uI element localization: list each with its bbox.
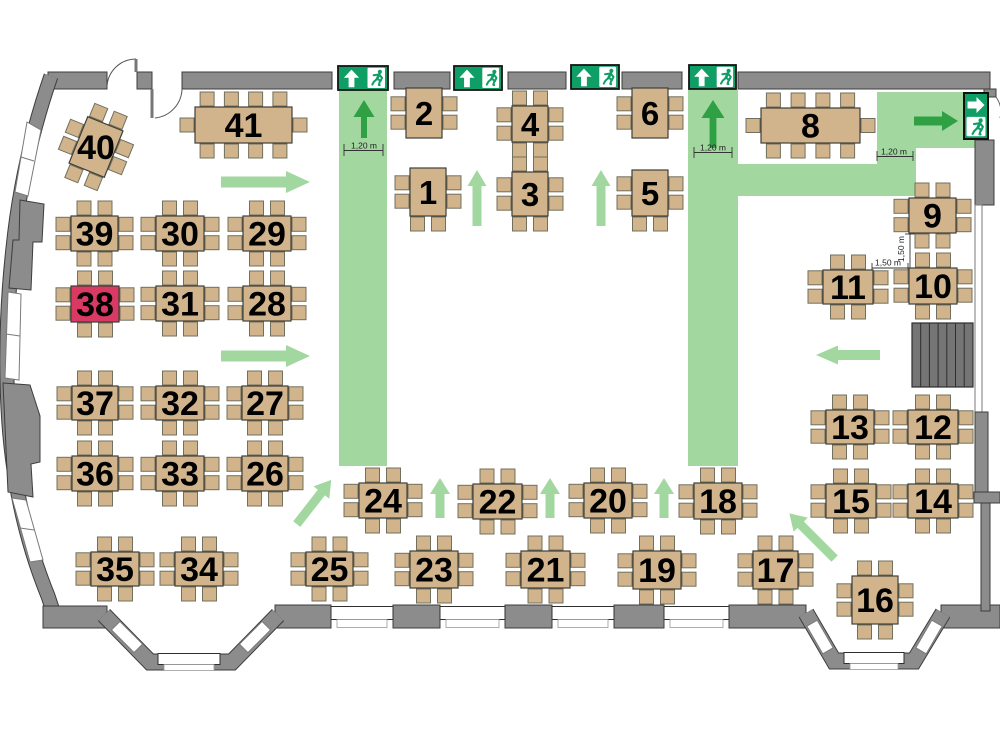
svg-text:9: 9	[923, 198, 942, 236]
svg-text:41: 41	[225, 107, 263, 145]
svg-text:15: 15	[832, 483, 870, 521]
svg-text:1,50 m: 1,50 m	[896, 236, 906, 262]
svg-text:1: 1	[419, 174, 437, 211]
svg-text:40: 40	[77, 129, 115, 167]
svg-text:5: 5	[641, 175, 659, 212]
svg-text:24: 24	[364, 483, 402, 521]
svg-text:39: 39	[76, 216, 114, 254]
svg-text:4: 4	[521, 106, 540, 143]
svg-text:38: 38	[76, 286, 114, 324]
svg-text:34: 34	[180, 551, 218, 589]
svg-text:27: 27	[246, 385, 284, 423]
svg-text:17: 17	[757, 552, 795, 590]
svg-text:3: 3	[521, 176, 539, 213]
svg-text:26: 26	[246, 456, 284, 494]
svg-text:36: 36	[76, 456, 114, 494]
svg-text:14: 14	[914, 483, 952, 521]
svg-text:18: 18	[699, 483, 737, 521]
svg-text:31: 31	[161, 286, 199, 324]
svg-text:30: 30	[161, 216, 199, 254]
svg-text:12: 12	[914, 409, 952, 447]
svg-text:19: 19	[638, 552, 676, 590]
svg-text:1,20 m: 1,20 m	[881, 147, 907, 157]
svg-text:21: 21	[527, 552, 565, 590]
svg-text:2: 2	[415, 95, 433, 132]
svg-text:35: 35	[96, 551, 134, 589]
svg-text:1,20 m: 1,20 m	[700, 143, 726, 153]
svg-text:1,20 m: 1,20 m	[351, 141, 377, 151]
svg-text:13: 13	[831, 409, 869, 447]
svg-text:6: 6	[641, 95, 659, 132]
svg-text:25: 25	[311, 551, 349, 589]
svg-text:29: 29	[248, 216, 286, 254]
svg-text:20: 20	[589, 483, 627, 521]
svg-text:32: 32	[161, 385, 199, 423]
svg-text:8: 8	[801, 108, 820, 146]
svg-text:33: 33	[161, 456, 199, 494]
svg-text:28: 28	[248, 286, 286, 324]
svg-text:16: 16	[856, 582, 894, 620]
svg-text:23: 23	[415, 552, 453, 590]
svg-text:22: 22	[479, 484, 517, 522]
svg-text:37: 37	[76, 385, 114, 423]
svg-text:10: 10	[914, 268, 952, 306]
svg-text:11: 11	[830, 269, 866, 307]
